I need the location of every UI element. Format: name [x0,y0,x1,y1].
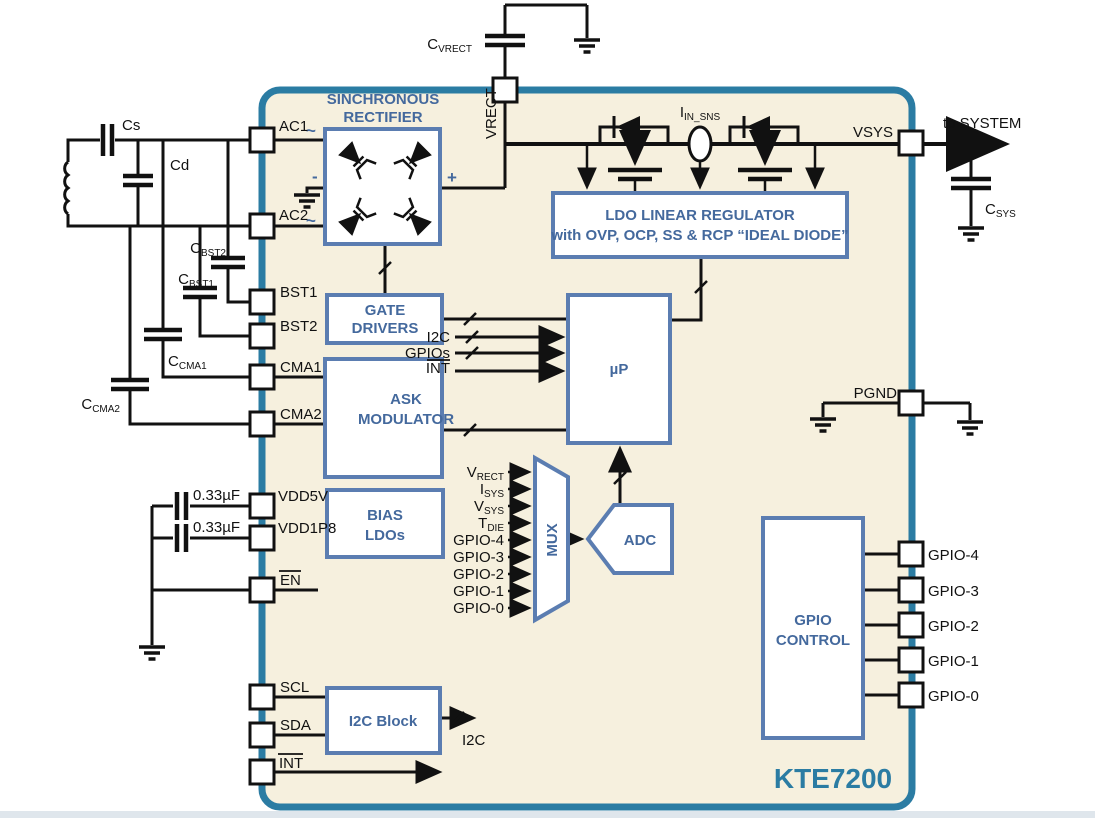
pin-label-vdd1p8: VDD1P8 [278,520,336,537]
pin-sda [250,723,274,747]
block-up: µP [568,295,670,443]
adc-label: ADC [624,532,657,549]
pin-pgnd [899,391,923,415]
up-label: µP [610,361,629,378]
pin-label-cma1: CMA1 [280,359,322,376]
i2c-bus-label: I2C [427,329,451,346]
block-gpio-control: GPIO CONTROL [763,518,863,738]
pin-gpio3 [899,578,923,602]
rectifier-plus-sign: + [447,168,457,187]
pin-ac1 [250,128,274,152]
pin-bst2 [250,324,274,348]
rectifier-title-line1: SINCHRONOUS [327,91,440,108]
pin-gpio1 [899,648,923,672]
mux-in-gpio2: GPIO-2 [453,566,504,583]
rectifier-minus-sign: - [312,167,318,186]
block-ldo: LDO LINEAR REGULATOR with OVP, OCP, SS &… [550,193,848,257]
pin-gpio0 [899,683,923,707]
rectifier-outline [325,129,440,244]
gpio-control-line1: GPIO [794,612,832,629]
pin-gpio4 [899,542,923,566]
pin-cma2 [250,412,274,436]
pin-cma1 [250,365,274,389]
cap-cbst1-label: CBST1 [178,271,214,290]
pin-vdd5v [250,494,274,518]
cap-ccma2-label: CCMA2 [81,396,120,415]
mux-in-gpio0: GPIO-0 [453,600,504,617]
ask-line2: MODULATOR [358,411,454,428]
pin-label-ac2: AC2 [279,207,308,224]
gate-drivers-line2: DRIVERS [352,320,419,337]
pin-int [250,760,274,784]
pin-label-gpio2: GPIO-2 [928,618,979,635]
mux-in-gpio1: GPIO-1 [453,583,504,600]
pin-gpio2 [899,613,923,637]
pin-bst1 [250,290,274,314]
pin-label-vdd5v: VDD5V [278,488,328,505]
mux-in-gpio3: GPIO-3 [453,549,504,566]
pin-label-sda: SDA [280,717,311,734]
chip-name: KTE7200 [774,763,892,794]
pin-en [250,578,274,602]
pin-vsys [899,131,923,155]
bias-line1: BIAS [367,507,403,524]
cap-cvrect-label: CVRECT [427,36,472,55]
int-bus-label: INT [426,360,450,377]
pin-label-bst1: BST1 [280,284,318,301]
block-i2c: I2C Block [327,688,440,753]
cap-cs-label: Cs [122,117,140,134]
page-bottom-strip [0,811,1095,818]
mux-label: MUX [544,523,561,556]
block-bias-ldos: BIAS LDOs [327,490,443,557]
mux-in-gpio4: GPIO-4 [453,532,504,549]
ldo-line1: LDO LINEAR REGULATOR [605,207,795,224]
pin-vdd1p8 [250,526,274,550]
ldo-outline [553,193,847,257]
cap-cbst2-label: CBST2 [190,240,226,259]
ask-line1: ASK [390,391,422,408]
rectifier-title-line2: RECTIFIER [343,109,422,126]
cap-csys-label: CSYS [985,201,1016,220]
bias-line2: LDOs [365,527,405,544]
pin-label-vrect: VRECT [483,88,500,139]
pin-label-en: EN [280,572,301,589]
cap-cd-label: Cd [170,157,189,174]
pin-ac2 [250,214,274,238]
pin-label-gpio1: GPIO-1 [928,653,979,670]
pin-label-gpio3: GPIO-3 [928,583,979,600]
cap-ccma1-label: CCMA1 [168,353,207,372]
pin-label-gpio4: GPIO-4 [928,547,979,564]
to-system-label: to SYSTEM [943,115,1021,132]
pin-label-gpio0: GPIO-0 [928,688,979,705]
pin-label-vsys: VSYS [853,124,893,141]
diagram-canvas: SINCHRONOUS RECTIFIER + - ~ ~ GATE DRIVE… [0,0,1095,818]
block-diagram: SINCHRONOUS RECTIFIER + - ~ ~ GATE DRIVE… [0,0,1095,818]
ldo-line2: with OVP, OCP, SS & RCP “IDEAL DIODE” [550,227,848,244]
i2c-label: I2C Block [349,713,418,730]
cap-vdd5v-value: 0.33µF [193,487,240,504]
block-gate-drivers: GATE DRIVERS [327,295,442,343]
gpio-control-line2: CONTROL [776,632,850,649]
i2c-out-label: I2C [462,732,486,749]
block-mux: MUX [535,458,568,620]
cap-vdd1p8-value: 0.33µF [193,519,240,536]
pin-label-scl: SCL [280,679,309,696]
pin-label-cma2: CMA2 [280,406,322,423]
pin-scl [250,685,274,709]
pin-label-bst2: BST2 [280,318,318,335]
gate-drivers-line1: GATE [365,302,406,319]
pin-label-int: INT [279,755,303,772]
pin-label-pgnd: PGND [854,385,898,402]
pin-label-ac1: AC1 [279,118,308,135]
